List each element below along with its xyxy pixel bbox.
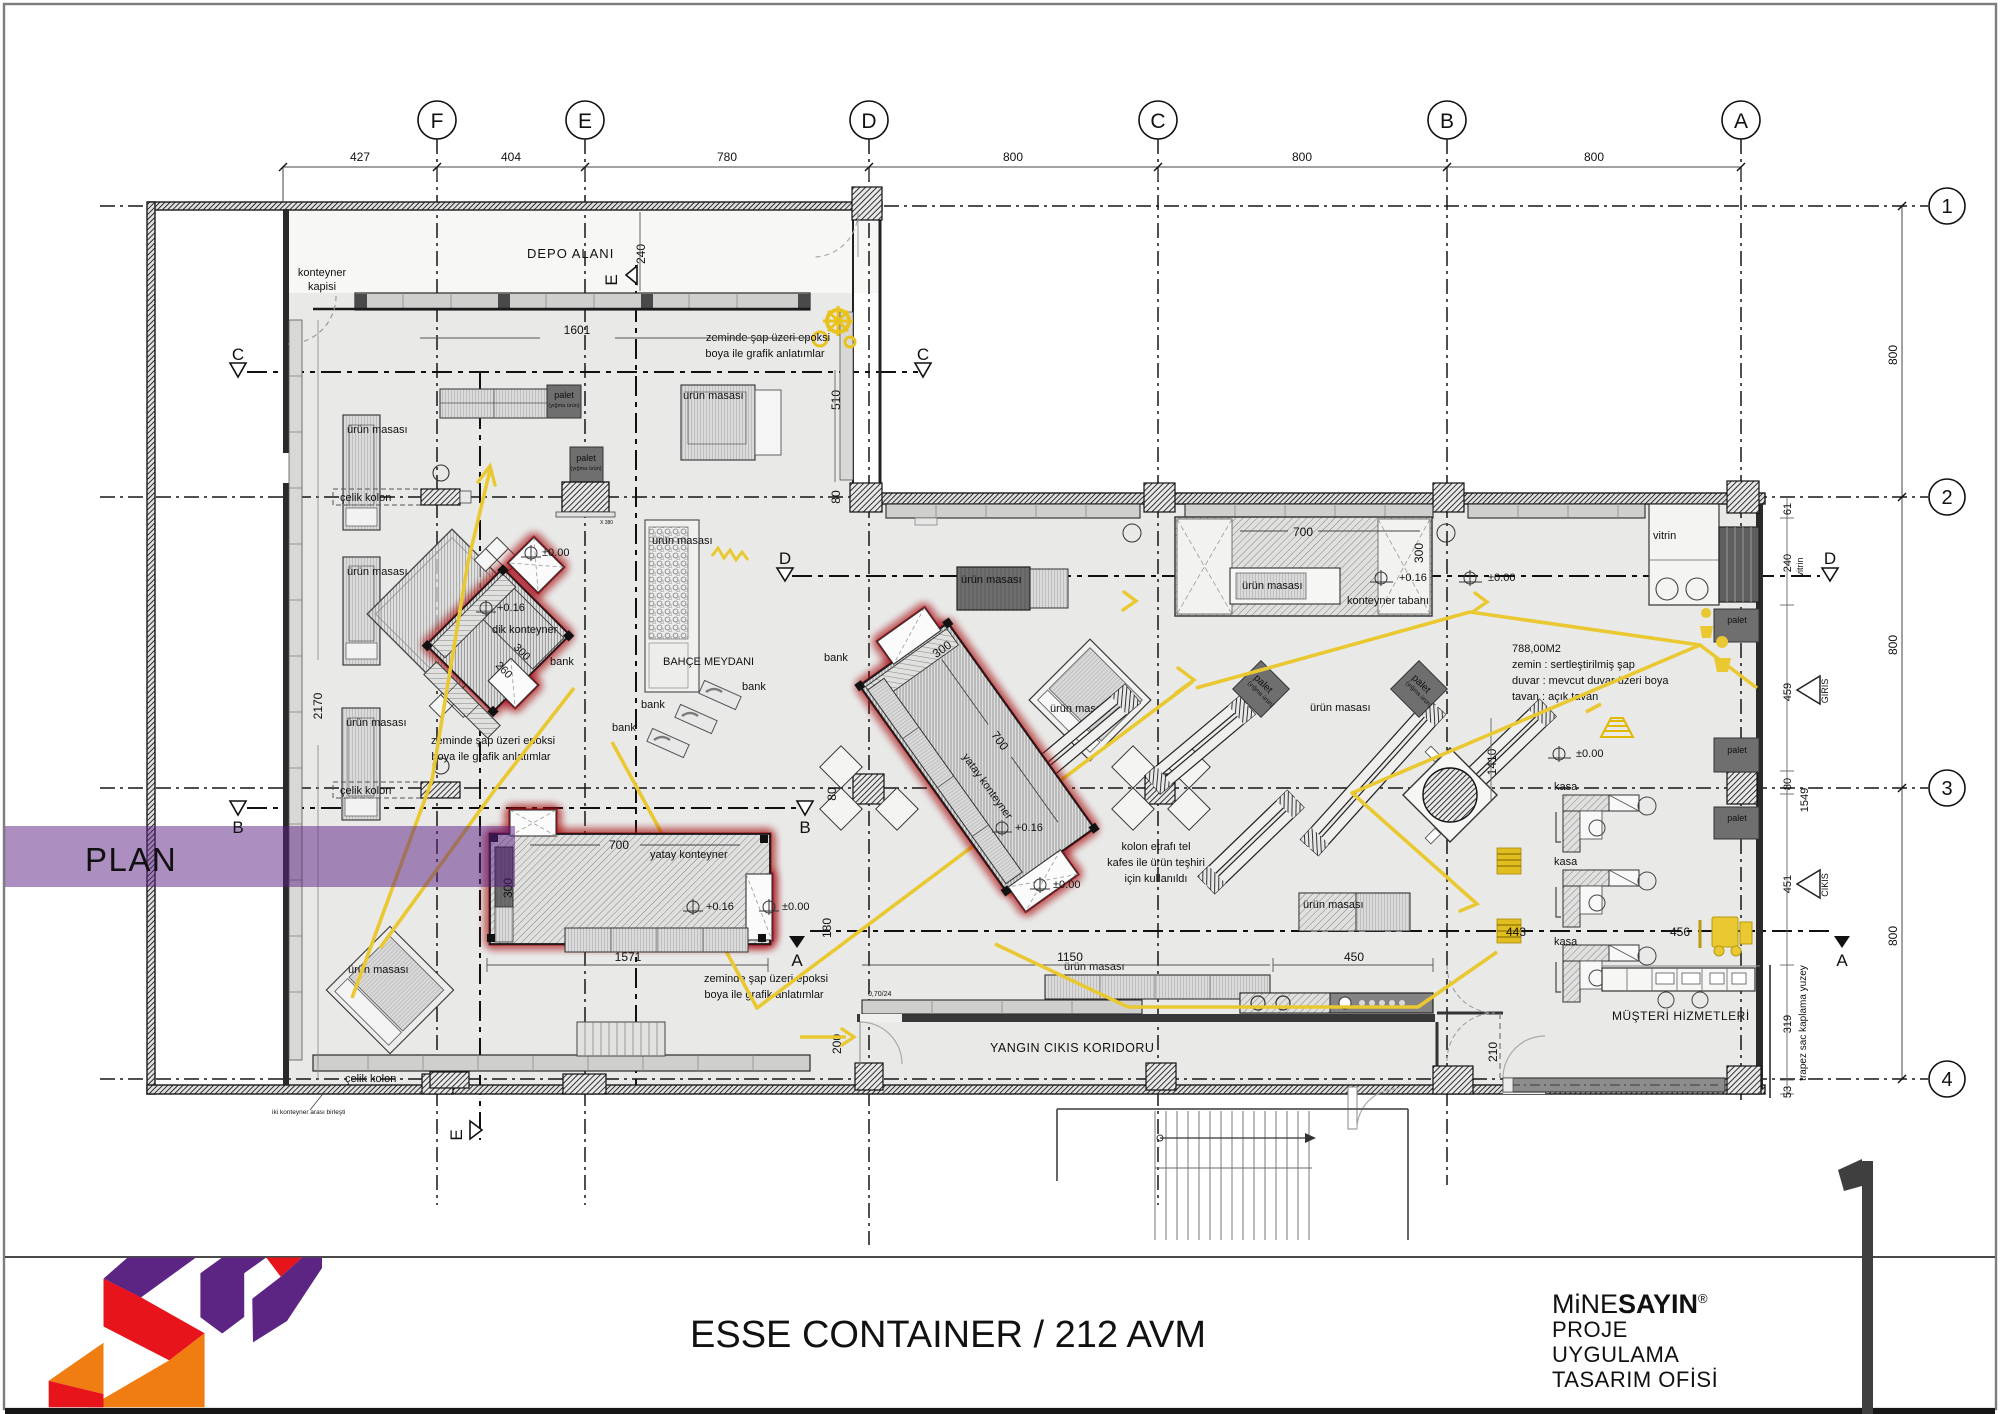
svg-text:ürün masası: ürün masası: [683, 390, 744, 402]
svg-text:zeminde şap üzeri epoksi: zeminde şap üzeri epoksi: [704, 973, 828, 985]
svg-text:180: 180: [820, 918, 834, 938]
svg-text:1410: 1410: [1485, 748, 1499, 775]
svg-text:bank: bank: [641, 699, 665, 711]
svg-text:YANGIN CIKIS KORIDORU: YANGIN CIKIS KORIDORU: [990, 1041, 1154, 1055]
svg-text:E: E: [602, 274, 621, 285]
svg-text:+0.16: +0.16: [706, 901, 734, 913]
svg-text:palet: palet: [554, 390, 574, 400]
svg-text:X 380: X 380: [600, 520, 613, 526]
svg-text:ürün masası: ürün masası: [1310, 702, 1371, 714]
svg-text:D: D: [779, 549, 791, 568]
svg-text:D: D: [1824, 549, 1836, 568]
svg-text:yatay konteyner: yatay konteyner: [650, 849, 728, 861]
svg-text:800: 800: [1886, 926, 1900, 946]
svg-text:B: B: [799, 818, 810, 837]
svg-text:E: E: [447, 1129, 466, 1140]
svg-text:iki konteyner arası birleşti: iki konteyner arası birleşti: [272, 1109, 345, 1116]
svg-text:456: 456: [1670, 925, 1690, 939]
svg-text:bank: bank: [612, 722, 636, 734]
svg-text:1150: 1150: [1057, 950, 1083, 964]
svg-text:kolon etrafı tel: kolon etrafı tel: [1121, 841, 1190, 853]
svg-text:boya ile grafik anlatımlar: boya ile grafik anlatımlar: [431, 751, 551, 763]
svg-text:B: B: [1440, 110, 1454, 133]
svg-text:1549: 1549: [1799, 788, 1811, 812]
svg-text:1601: 1601: [564, 323, 591, 337]
svg-text:palet: palet: [1727, 615, 1747, 625]
svg-text:PROJE: PROJE: [1552, 1317, 1628, 1342]
svg-text:A: A: [791, 951, 803, 970]
svg-text:80: 80: [1782, 778, 1794, 790]
svg-text:±0.00: ±0.00: [542, 547, 569, 559]
svg-text:800: 800: [1584, 150, 1604, 164]
svg-text:duvar : mevcut duvar üzeri boy: duvar : mevcut duvar üzeri boya: [1512, 675, 1669, 687]
svg-text:kasa: kasa: [1554, 936, 1578, 948]
svg-text:E: E: [578, 110, 592, 133]
svg-text:ürün masası: ürün masası: [346, 717, 407, 729]
svg-text:kapisi: kapisi: [308, 281, 336, 293]
svg-text:+0.16: +0.16: [1399, 572, 1427, 584]
svg-text:MiNESAYIN®: MiNESAYIN®: [1552, 1289, 1708, 1319]
svg-text:240: 240: [1782, 554, 1794, 572]
svg-text:boya ile grafik anlatımlar: boya ile grafik anlatımlar: [704, 989, 824, 1001]
svg-text:300: 300: [1412, 543, 1426, 563]
svg-text:2: 2: [1941, 487, 1952, 509]
svg-text:trapez sac kaplama yuzey: trapez sac kaplama yuzey: [1798, 965, 1809, 1081]
svg-text:CIKIS: CIKIS: [1820, 873, 1830, 897]
svg-text:61: 61: [1782, 503, 1794, 515]
svg-text:palet: palet: [1727, 745, 1747, 755]
svg-text:±0.00: ±0.00: [782, 901, 809, 913]
svg-text:±0.00: ±0.00: [1053, 879, 1080, 891]
svg-text:BAHÇE MEYDANI: BAHÇE MEYDANI: [663, 656, 754, 668]
svg-text:+0.16: +0.16: [1015, 822, 1043, 834]
svg-text:210: 210: [1486, 1042, 1500, 1062]
svg-text:700: 700: [1293, 525, 1313, 539]
svg-text:ürün masası: ürün masası: [347, 424, 408, 436]
svg-text:zemin : sertleştirilmiş şap: zemin : sertleştirilmiş şap: [1512, 659, 1635, 671]
svg-text:çelik kolon: çelik kolon: [340, 492, 391, 504]
svg-text:vitrin: vitrin: [1653, 530, 1676, 542]
svg-text:ESSE CONTAINER / 212 AVM: ESSE CONTAINER / 212 AVM: [690, 1314, 1206, 1356]
svg-text:bank: bank: [824, 652, 848, 664]
svg-text:UYGULAMA: UYGULAMA: [1552, 1342, 1679, 1367]
svg-text:80: 80: [825, 787, 839, 801]
svg-text:DEPO ALANI: DEPO ALANI: [527, 246, 614, 261]
svg-text:B: B: [232, 818, 243, 837]
svg-text:450: 450: [1344, 950, 1364, 964]
svg-text:800: 800: [1886, 345, 1900, 365]
svg-text:bank: bank: [550, 656, 574, 668]
svg-text:A: A: [1734, 110, 1748, 133]
svg-text:F: F: [431, 110, 444, 133]
svg-text:A: A: [1836, 951, 1848, 970]
svg-text:780: 780: [717, 150, 737, 164]
svg-text:konteyner: konteyner: [298, 267, 347, 279]
svg-text:kasa: kasa: [1554, 856, 1578, 868]
svg-text:+0.16: +0.16: [497, 602, 525, 614]
svg-text:±0.00: ±0.00: [1576, 748, 1603, 760]
svg-text:(yığma ürün): (yığma ürün): [548, 403, 579, 409]
svg-text:boya ile grafik anlatımlar: boya ile grafik anlatımlar: [705, 348, 825, 360]
svg-text:palet: palet: [576, 453, 596, 463]
svg-text:ürün masası: ürün masası: [348, 964, 409, 976]
svg-text:vitrin: vitrin: [1795, 557, 1805, 576]
svg-text:319: 319: [1782, 1015, 1794, 1033]
svg-text:C: C: [917, 345, 929, 364]
svg-text:çelik kolon: çelik kolon: [340, 785, 391, 797]
svg-text:700: 700: [609, 838, 629, 852]
svg-text:GIRIS: GIRIS: [1820, 679, 1830, 704]
svg-text:510: 510: [829, 390, 843, 410]
svg-text:bank: bank: [742, 681, 766, 693]
svg-text:3: 3: [1941, 778, 1952, 800]
svg-text:1: 1: [1941, 196, 1952, 218]
svg-text:4: 4: [1941, 1069, 1952, 1091]
svg-text:404: 404: [501, 150, 521, 164]
svg-text:800: 800: [1292, 150, 1312, 164]
svg-text:53: 53: [1782, 1086, 1794, 1098]
svg-text:ürün masası: ürün masası: [347, 566, 408, 578]
svg-text:240: 240: [634, 244, 648, 264]
svg-text:800: 800: [1886, 635, 1900, 655]
svg-text:için kullanıldı: için kullanıldı: [1125, 873, 1188, 885]
svg-text:D: D: [861, 110, 876, 133]
svg-text:palet: palet: [1727, 813, 1747, 823]
svg-text:2170: 2170: [311, 692, 325, 719]
svg-text:427: 427: [350, 150, 370, 164]
svg-text:443: 443: [1506, 925, 1526, 939]
svg-text:PLAN: PLAN: [85, 841, 177, 878]
svg-text:dik konteyner: dik konteyner: [492, 624, 558, 636]
svg-text:C: C: [1150, 110, 1165, 133]
svg-text:C: C: [232, 345, 244, 364]
svg-text:451: 451: [1782, 875, 1794, 893]
svg-text:TASARIM OFİSİ: TASARIM OFİSİ: [1552, 1367, 1718, 1392]
svg-text:konteyner tabanı: konteyner tabanı: [1347, 595, 1429, 607]
svg-text:ürün masası: ürün masası: [652, 535, 713, 547]
svg-text:80: 80: [829, 490, 843, 504]
svg-text:800: 800: [1003, 150, 1023, 164]
svg-text:çelik kolon: çelik kolon: [345, 1073, 396, 1085]
svg-text:459: 459: [1782, 683, 1794, 701]
svg-text:kasa: kasa: [1554, 781, 1578, 793]
svg-text:ürün masası: ürün masası: [1242, 580, 1303, 592]
svg-text:±0.00: ±0.00: [1488, 572, 1515, 584]
svg-text:ürün masası: ürün masası: [961, 574, 1022, 586]
svg-text:788,00M2: 788,00M2: [1512, 643, 1561, 655]
svg-text:ürün masası: ürün masası: [1303, 899, 1364, 911]
svg-text:(yığma ürün): (yığma ürün): [570, 466, 601, 472]
svg-text:MÜŞTERİ HİZMETLERİ: MÜŞTERİ HİZMETLERİ: [1612, 1009, 1750, 1023]
svg-text:kafes ile ürün teşhiri: kafes ile ürün teşhiri: [1107, 857, 1205, 869]
svg-text:0,70/24: 0,70/24: [868, 991, 891, 998]
